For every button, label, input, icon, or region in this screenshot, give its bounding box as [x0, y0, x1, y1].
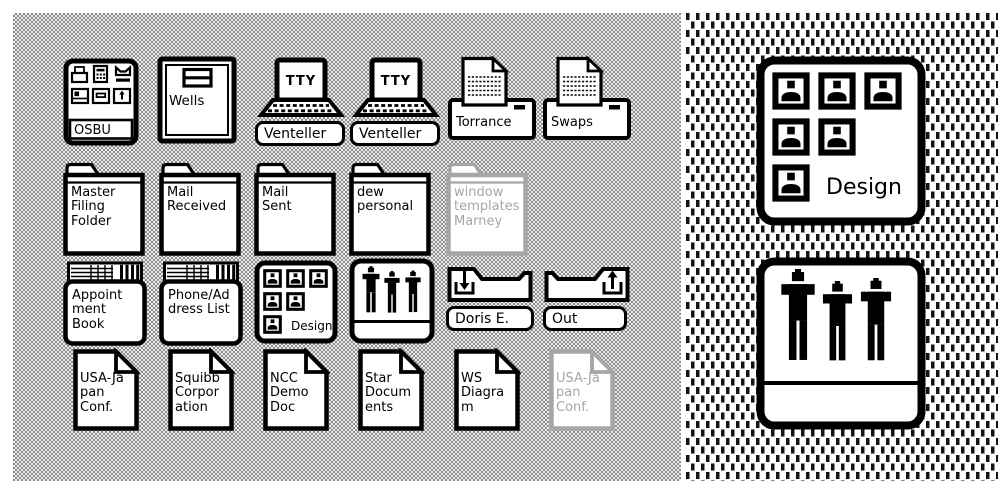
torrance-label: Torrance: [456, 116, 512, 130]
portrait-grid-icon: Design: [756, 56, 926, 226]
folder-label: Mail Sent: [262, 186, 328, 215]
osbu-label: OSBU: [74, 123, 111, 138]
venteller-label: Venteller: [255, 121, 345, 146]
folder-mail-sent[interactable]: Mail Sent: [254, 160, 336, 256]
document-label: Star Docum ents: [365, 372, 419, 415]
tty-screen-text: TTY: [381, 74, 411, 89]
phone-address-list-label: Phone/Ad dress List: [168, 289, 240, 318]
out-tray-glyph-icon: [543, 262, 631, 304]
venteller-label: Venteller: [350, 121, 440, 146]
folder-window-templates-ghost[interactable]: window templates Marney: [446, 160, 528, 256]
design-group-icon-large[interactable]: Design: [756, 56, 926, 226]
people-icon: [756, 257, 926, 430]
wells-icon[interactable]: Wells: [157, 56, 237, 144]
tty-terminal-icon: TTY: [251, 57, 349, 120]
folder-label: Master Filing Folder: [71, 186, 137, 229]
document-usa-japan-conf-ghost[interactable]: USA-Ja pan Conf.: [548, 348, 616, 432]
venteller-icon-1[interactable]: TTY Venteller: [251, 57, 349, 149]
folder-dew-personal[interactable]: dew personal: [349, 160, 431, 256]
in-tray-doris-icon[interactable]: Doris E.: [446, 262, 534, 336]
in-tray-label: Doris E.: [446, 306, 534, 331]
out-tray-icon[interactable]: Out: [543, 262, 629, 336]
in-tray-icon: [446, 262, 534, 304]
devices-grid-icon: OSBU: [63, 58, 139, 146]
people-group-icon[interactable]: [349, 258, 435, 344]
appointment-book-icon[interactable]: Appoint ment Book: [63, 260, 147, 346]
screenshot-root: OSBU Wells TTY Venteller TTY: [0, 0, 1000, 495]
file-drawer-icon: Wells: [157, 56, 237, 144]
document-label: NCC Demo Doc: [270, 372, 324, 415]
document-label: WS Diagra m: [461, 372, 515, 415]
document-label: USA-Ja pan Conf.: [80, 372, 134, 415]
swaps-label: Swaps: [551, 116, 593, 130]
document-label: Squibb Corpor ation: [175, 372, 229, 415]
document-label: USA-Ja pan Conf.: [556, 372, 610, 415]
wells-label: Wells: [169, 93, 204, 109]
document-usa-japan-conf[interactable]: USA-Ja pan Conf.: [72, 348, 140, 432]
people-icon: [349, 258, 435, 344]
folder-label: window templates Marney: [454, 186, 524, 229]
folder-label: dew personal: [357, 186, 423, 215]
design-group-label: Design: [291, 319, 332, 333]
tty-screen-text: TTY: [286, 74, 316, 89]
tty-terminal-icon: TTY: [346, 57, 444, 120]
appointment-book-label: Appoint ment Book: [72, 289, 142, 332]
document-star-documents[interactable]: Star Docum ents: [357, 348, 425, 432]
venteller-icon-2[interactable]: TTY Venteller: [346, 57, 444, 149]
out-tray-label: Out: [543, 306, 627, 331]
people-group-icon-large[interactable]: [756, 257, 926, 430]
portrait-grid-icon: Design: [254, 260, 338, 344]
swaps-printer-icon[interactable]: Swaps: [542, 56, 632, 142]
folder-mail-received[interactable]: Mail Received: [159, 160, 241, 256]
design-group-large-label: Design: [826, 175, 902, 200]
document-ws-diagram[interactable]: WS Diagra m: [453, 348, 521, 432]
design-group-icon[interactable]: Design: [254, 260, 338, 344]
document-squibb-corporation[interactable]: Squibb Corpor ation: [167, 348, 235, 432]
osbu-icon[interactable]: OSBU: [63, 58, 139, 146]
torrance-printer-icon[interactable]: Torrance: [447, 56, 537, 142]
folder-label: Mail Received: [167, 186, 233, 215]
folder-master-filing[interactable]: Master Filing Folder: [63, 160, 145, 256]
phone-address-list-icon[interactable]: Phone/Ad dress List: [159, 260, 243, 346]
document-ncc-demo-doc[interactable]: NCC Demo Doc: [262, 348, 330, 432]
